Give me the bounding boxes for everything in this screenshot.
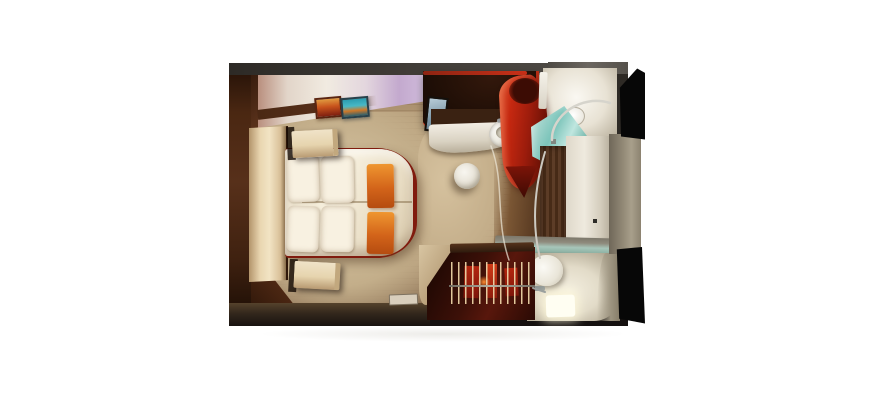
door-handle-icon	[535, 152, 545, 258]
drop-shadow	[258, 326, 628, 342]
stateroom-floorplan-render	[0, 0, 881, 400]
chrome-details-overlay	[229, 64, 641, 326]
shower-arm-icon	[552, 101, 610, 140]
floor-trim-curve	[491, 146, 509, 260]
toilet-chrome-icon	[533, 288, 545, 292]
